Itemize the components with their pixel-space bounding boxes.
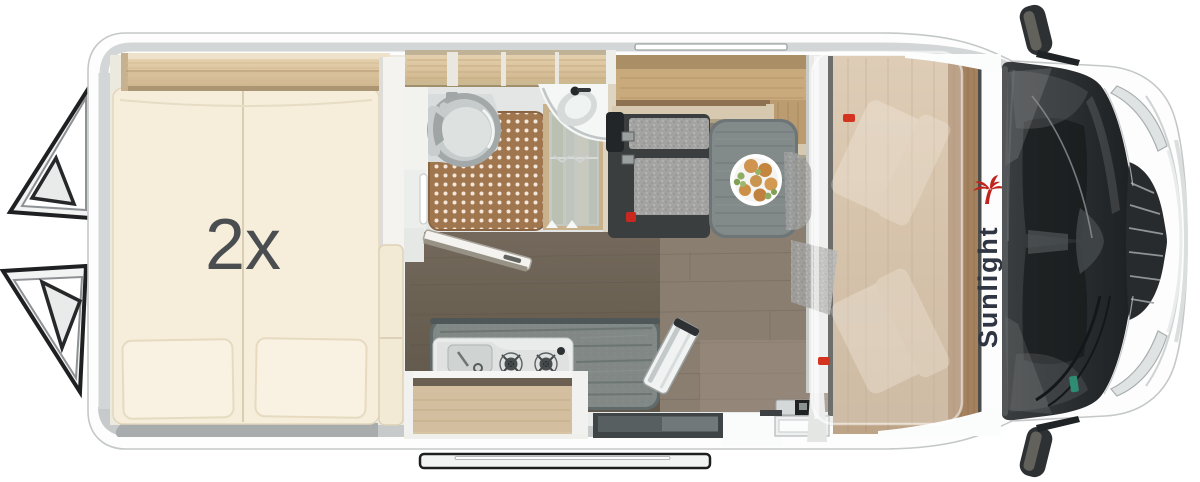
svg-text:2x: 2x (205, 205, 281, 285)
svg-text:Sunlight: Sunlight (973, 226, 1003, 348)
